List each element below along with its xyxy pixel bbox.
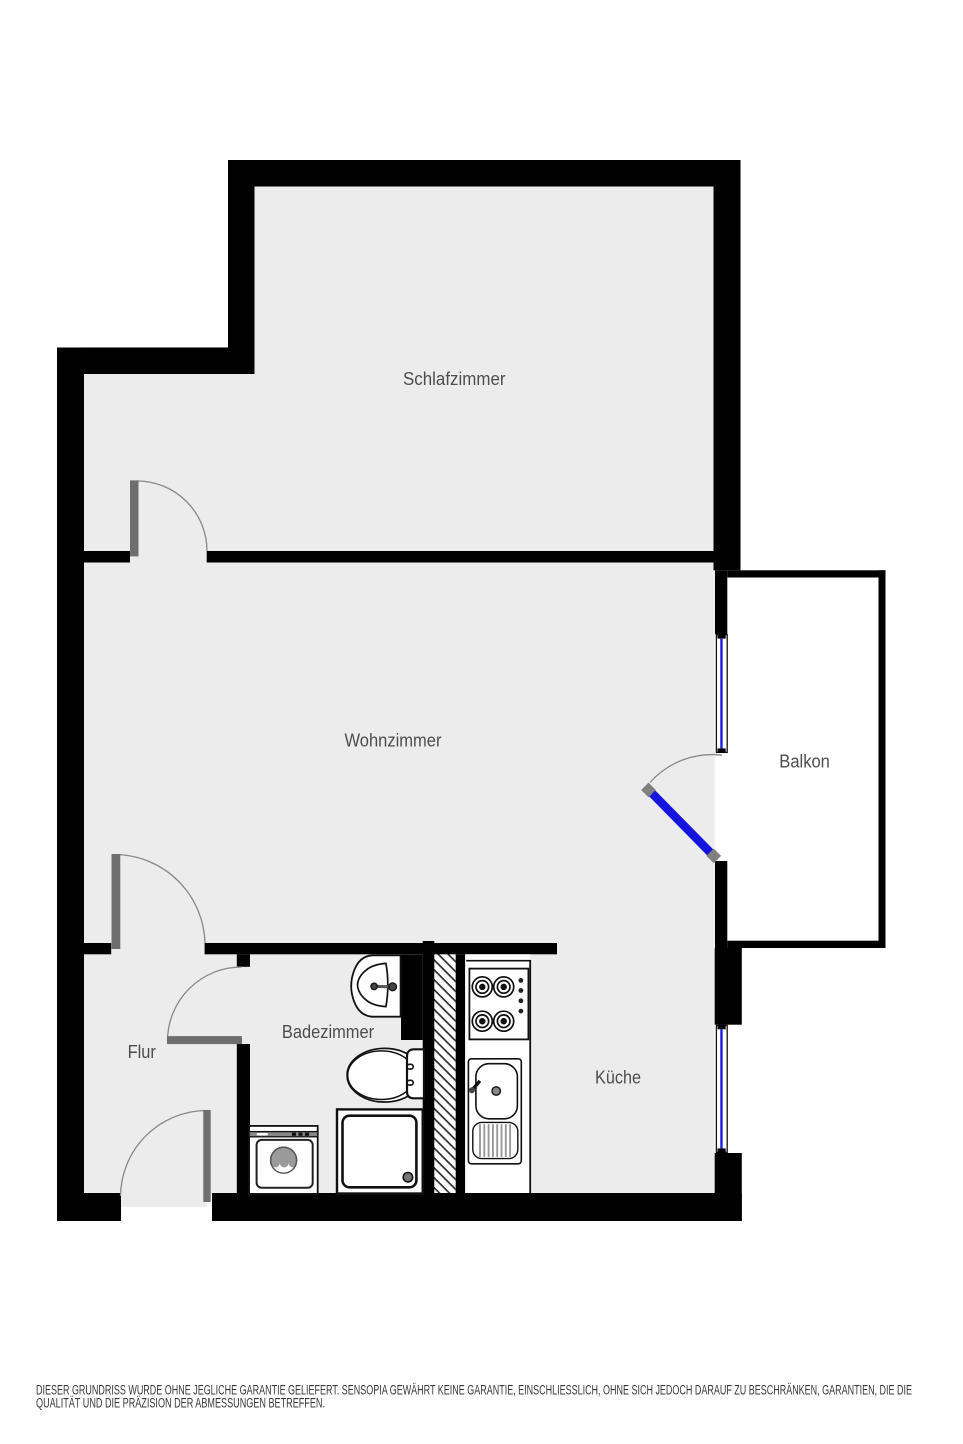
- svg-text:Küche: Küche: [595, 1067, 641, 1088]
- svg-text:Wohnzimmer: Wohnzimmer: [345, 730, 442, 751]
- svg-text:Badezimmer: Badezimmer: [282, 1021, 374, 1042]
- svg-text:QUALITÄT UND DIE PRÄZISION DER: QUALITÄT UND DIE PRÄZISION DER ABMESSUNG…: [36, 1396, 325, 1411]
- svg-text:Schlafzimmer: Schlafzimmer: [403, 368, 506, 389]
- svg-text:Flur: Flur: [128, 1041, 156, 1062]
- svg-text:Balkon: Balkon: [779, 751, 830, 772]
